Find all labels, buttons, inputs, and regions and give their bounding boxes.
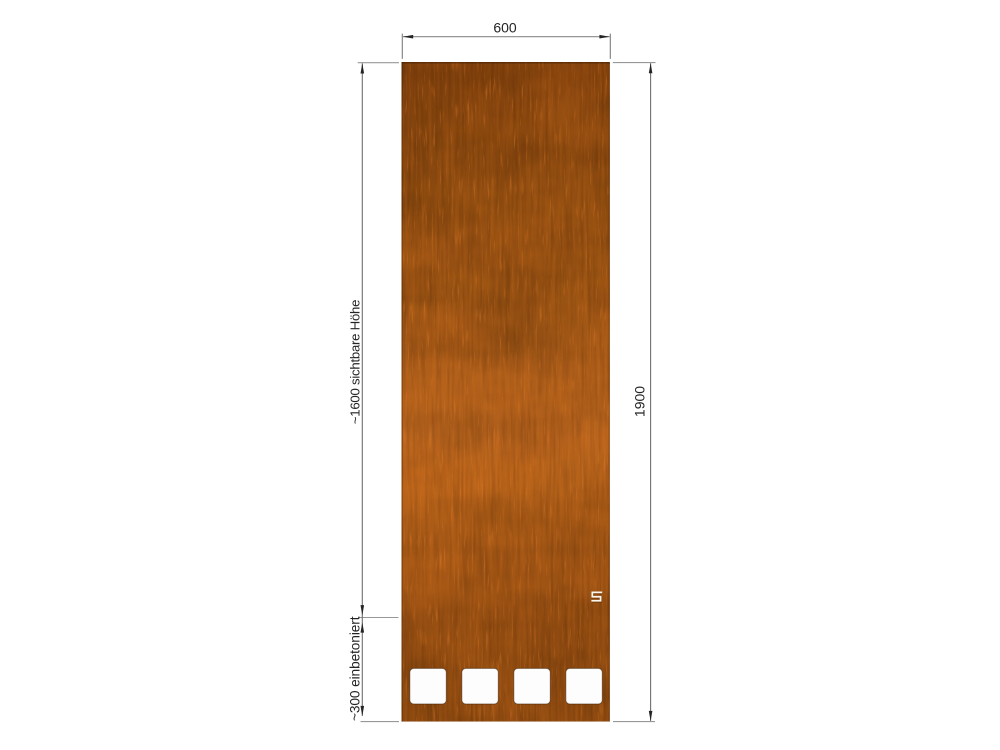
svg-text:600: 600 [493, 19, 517, 35]
svg-text:~1600 sichtbare Höhe: ~1600 sichtbare Höhe [348, 300, 363, 424]
svg-text:1900: 1900 [632, 386, 648, 417]
svg-text:~300 einbetoniert: ~300 einbetoniert [348, 616, 363, 721]
